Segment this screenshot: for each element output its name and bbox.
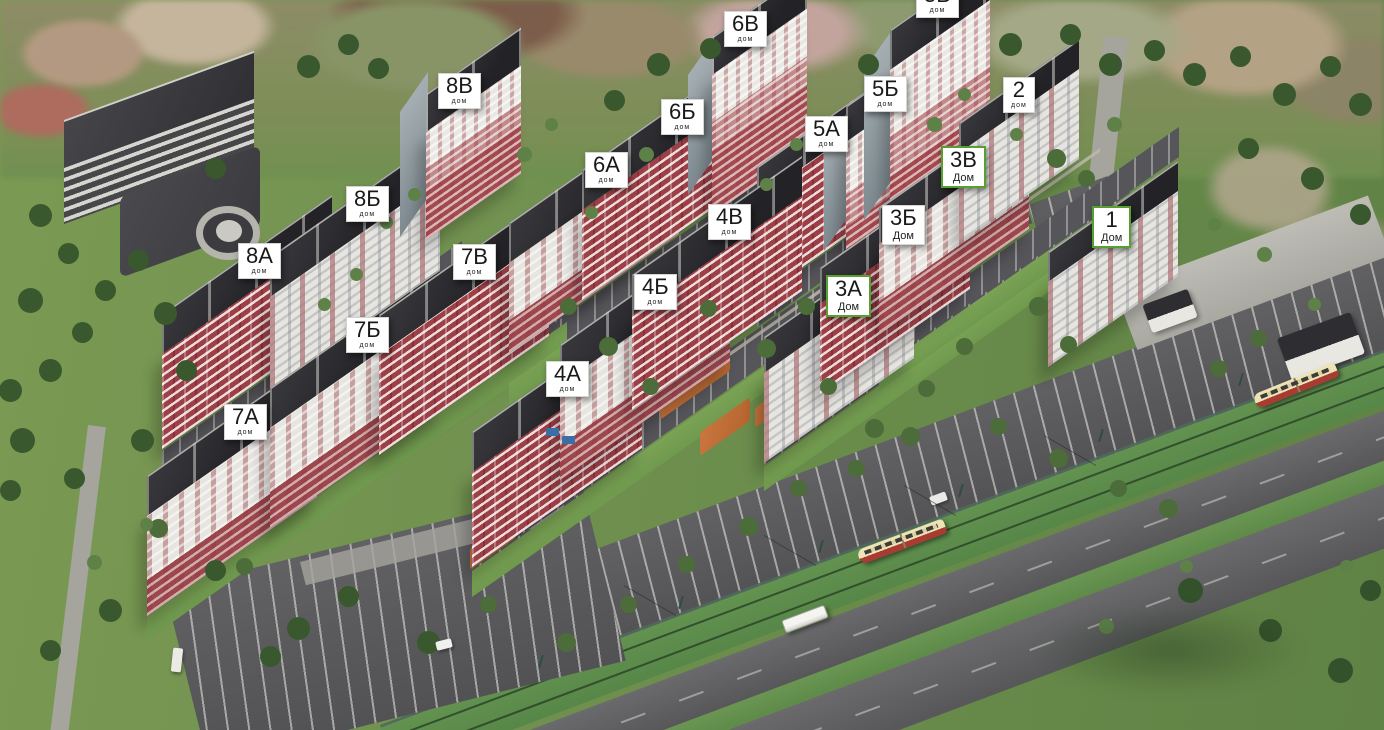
- marker-label: 4А: [554, 362, 581, 386]
- marker-sublabel: дом: [669, 124, 696, 132]
- building-marker-6a[interactable]: 6А дом: [585, 152, 628, 188]
- building-marker-7v[interactable]: 7В дом: [453, 244, 496, 280]
- building-marker-7a[interactable]: 7А дом: [224, 404, 267, 440]
- building-marker-4v[interactable]: 4В дом: [708, 204, 751, 240]
- marker-sublabel: дом: [716, 229, 743, 237]
- parking-ramp-hub: [216, 220, 242, 242]
- marker-sublabel: дом: [593, 177, 620, 185]
- west-access-road: [49, 425, 106, 730]
- dumpster: [562, 436, 575, 444]
- dumpster: [546, 428, 559, 436]
- marker-label: 7Б: [354, 318, 381, 342]
- genplan-stage: 8В дом 8Б дом 8А дом 7В дом 7Б дом 7А до…: [0, 0, 1384, 730]
- marker-sublabel: дом: [554, 386, 581, 394]
- marker-label: 3А: [835, 277, 862, 301]
- marker-sublabel: дом: [872, 101, 899, 109]
- marker-sublabel: дом: [246, 268, 273, 276]
- marker-label: 4В: [716, 205, 743, 229]
- marker-sublabel: дом: [354, 342, 381, 350]
- marker-sublabel: дом: [642, 299, 669, 307]
- building-marker-8v[interactable]: 8В дом: [438, 73, 481, 109]
- van: [171, 648, 183, 673]
- tree-shadow: [1020, 590, 1320, 710]
- marker-sublabel: дом: [446, 98, 473, 106]
- marker-sublabel: Дом: [835, 301, 862, 313]
- marker-sublabel: Дом: [890, 230, 917, 242]
- building-marker-4b[interactable]: 4Б дом: [634, 274, 677, 310]
- marker-sublabel: дом: [232, 429, 259, 437]
- marker-sublabel: дом: [461, 269, 488, 277]
- marker-label: 5А: [813, 117, 840, 141]
- marker-sublabel: дом: [354, 211, 381, 219]
- building-marker-1[interactable]: 1 Дом: [1092, 206, 1131, 248]
- marker-label: 7В: [461, 245, 488, 269]
- building-marker-4a[interactable]: 4А дом: [546, 361, 589, 397]
- marker-sublabel: дом: [732, 36, 759, 44]
- tree-cluster-light: [0, 0, 13, 13]
- marker-label: 6Б: [669, 100, 696, 124]
- marker-label: 8А: [246, 244, 273, 268]
- building-marker-3b[interactable]: 3Б Дом: [882, 205, 925, 245]
- marker-label: 8Б: [354, 187, 381, 211]
- marker-label: 3Б: [890, 206, 917, 230]
- building-marker-5a[interactable]: 5А дом: [805, 116, 848, 152]
- marker-label: 5В: [924, 0, 951, 7]
- building-marker-3v[interactable]: 3В Дом: [941, 146, 986, 188]
- marker-label: 7А: [232, 405, 259, 429]
- building-marker-8b[interactable]: 8Б дом: [346, 186, 389, 222]
- marker-label: 8В: [446, 74, 473, 98]
- marker-sublabel: дом: [813, 141, 840, 149]
- marker-label: 2: [1011, 78, 1027, 102]
- marker-label: 3В: [950, 148, 977, 172]
- marker-sublabel: дом: [1011, 102, 1027, 110]
- marker-label: 1: [1101, 208, 1122, 232]
- marker-sublabel: дом: [924, 7, 951, 15]
- marker-label: 6В: [732, 12, 759, 36]
- building-marker-6b[interactable]: 6Б дом: [661, 99, 704, 135]
- marker-label: 5Б: [872, 77, 899, 101]
- marker-label: 4Б: [642, 275, 669, 299]
- marker-sublabel: Дом: [950, 172, 977, 184]
- building-marker-5b[interactable]: 5Б дом: [864, 76, 907, 112]
- building-marker-6v[interactable]: 6В дом: [724, 11, 767, 47]
- building-marker-3a[interactable]: 3А Дом: [826, 275, 871, 317]
- building-marker-2[interactable]: 2 дом: [1003, 77, 1035, 113]
- building-marker-5v[interactable]: 5В дом: [916, 0, 959, 18]
- building-marker-7b[interactable]: 7Б дом: [346, 317, 389, 353]
- marker-label: 6А: [593, 153, 620, 177]
- marker-sublabel: Дом: [1101, 232, 1122, 244]
- building-marker-8a[interactable]: 8А дом: [238, 243, 281, 279]
